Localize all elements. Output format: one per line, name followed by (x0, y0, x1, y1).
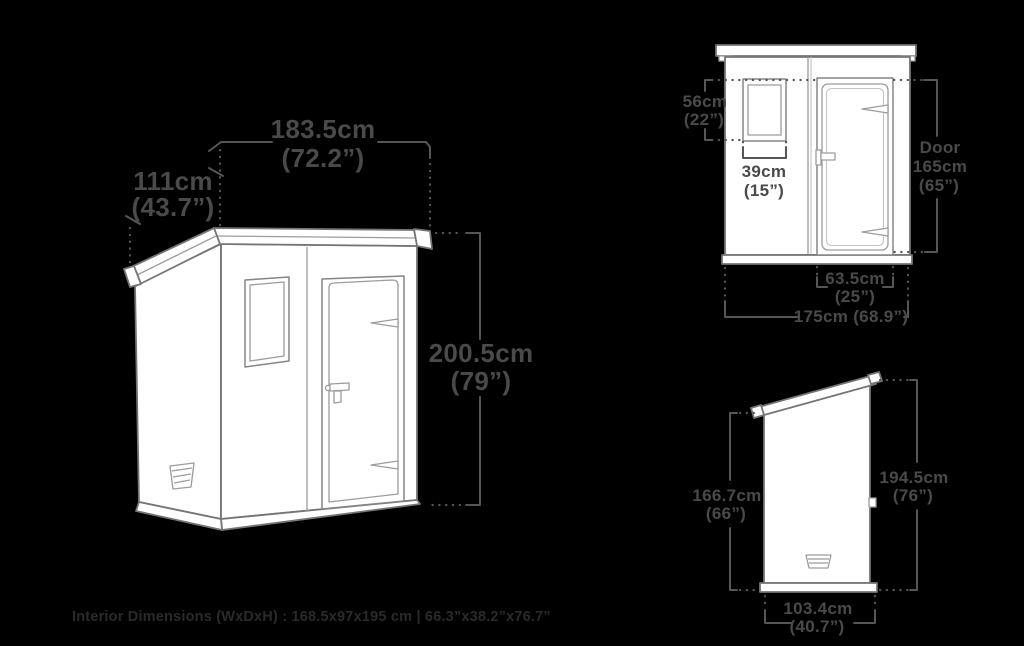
front-floor-bar (722, 255, 912, 264)
front-door-width-dimension: 63.5cm (25”) (817, 267, 893, 306)
side-wall (764, 383, 870, 583)
width-label-cm: 183.5cm (271, 114, 376, 144)
side-wall-height-dimension: 166.7cm (66”) (692, 413, 761, 590)
door-height-label-in: (65”) (919, 176, 959, 195)
overall-height-label-in: (76”) (893, 486, 933, 505)
side-roof-left-cap (751, 405, 764, 418)
window-height-label-cm: 56cm (683, 92, 728, 111)
diagram-svg: 183.5cm (72.2”) 111cm (43.7”) 200.5cm (7… (0, 0, 1024, 646)
side-depth-label-in: (40.7”) (789, 617, 844, 636)
side-roof-right-cap (868, 372, 882, 384)
shed-dimensions-diagram: 183.5cm (72.2”) 111cm (43.7”) 200.5cm (7… (0, 0, 1024, 646)
wall-height-label-cm: 166.7cm (692, 486, 761, 505)
side-door-handle (869, 498, 876, 507)
door-width-label-cm: 63.5cm (825, 269, 884, 288)
interior-dimensions-text: Interior Dimensions (WxDxH) : 168.5x97x1… (72, 609, 551, 625)
window-width-label-in: (15”) (744, 181, 784, 200)
perspective-width-dimension: 183.5cm (72.2”) (209, 114, 430, 228)
door-width-label-in: (25”) (835, 287, 875, 306)
overall-width-label: 175cm (68.9”) (794, 307, 908, 326)
front-window (743, 79, 786, 141)
door-label: Door (920, 138, 961, 157)
front-roof-bar (716, 45, 916, 56)
door-height-label-cm: 165cm (913, 157, 967, 176)
perspective-roof-right-cap (414, 229, 432, 249)
window-height-label-in: (22”) (684, 110, 724, 129)
height-label-in: (79”) (451, 366, 512, 396)
window-width-label-cm: 39cm (742, 162, 787, 181)
side-depth-dimension: 103.4cm (40.7”) (765, 596, 875, 636)
overall-height-label-cm: 194.5cm (879, 468, 948, 487)
width-label-in: (72.2”) (281, 143, 364, 173)
wall-height-label-in: (66”) (706, 504, 746, 523)
perspective-height-dimension: 200.5cm (79”) (426, 233, 533, 505)
side-depth-label-cm: 103.4cm (783, 599, 852, 618)
perspective-shed-drawing (124, 228, 432, 530)
depth-label-in: (43.7”) (131, 192, 214, 222)
height-label-cm: 200.5cm (429, 338, 534, 368)
side-vent (806, 555, 831, 568)
perspective-window (245, 277, 289, 367)
side-view-shed-drawing (751, 372, 882, 592)
front-view-shed-drawing (716, 45, 916, 264)
side-overall-height-dimension: 194.5cm (76”) (879, 380, 948, 590)
perspective-vent (170, 463, 194, 489)
side-floor-bar (760, 583, 877, 592)
